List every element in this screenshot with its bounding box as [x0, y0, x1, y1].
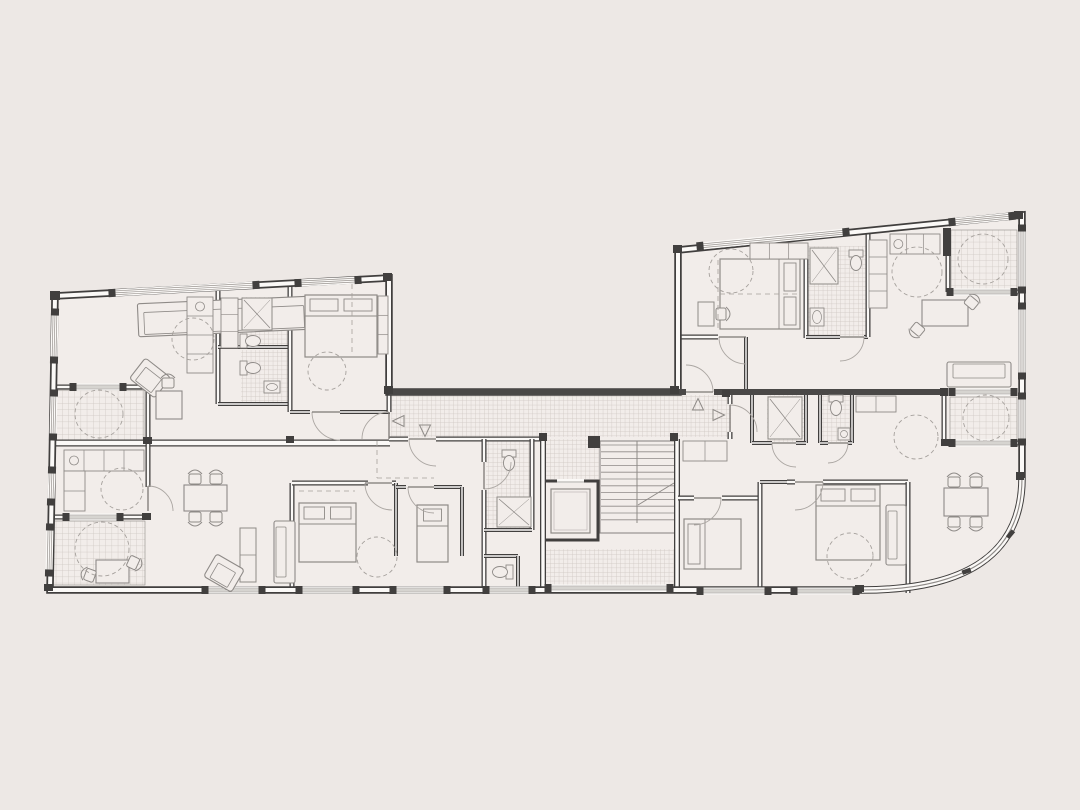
- kitchen-counter-a: [187, 297, 213, 373]
- shower-c: [810, 248, 838, 284]
- closet-a: [221, 298, 238, 348]
- bed-d2-double: [816, 485, 880, 560]
- floor-plan-page: [0, 0, 1080, 810]
- kitchen-counter-c: [890, 234, 940, 254]
- toilet-a1: [240, 334, 261, 348]
- sink-c: [810, 308, 824, 326]
- floor-plan-drawing: [0, 0, 1080, 810]
- bed-b-single: [417, 505, 448, 562]
- wardrobe-a: [378, 296, 388, 354]
- sofa-b: [274, 521, 295, 583]
- terrace-table-b: [96, 560, 129, 583]
- sink-d2: [838, 428, 850, 440]
- terrace-a: [56, 390, 144, 440]
- dining-table-d: [944, 488, 988, 516]
- terrace-c: [951, 230, 1017, 290]
- toilet-b-wc: [493, 565, 514, 579]
- toilet-c: [849, 250, 863, 271]
- bed-b-double: [299, 503, 356, 562]
- dining-table-b: [184, 485, 227, 511]
- closet-c: [869, 240, 887, 308]
- desk-a: [156, 391, 182, 419]
- bed-d1-double: [684, 519, 741, 569]
- kitchen-counter-b2: [64, 471, 85, 511]
- toilet-a2: [240, 361, 261, 375]
- shower-d1: [768, 397, 802, 439]
- toilet-d2: [829, 395, 843, 416]
- bed-a-double: [305, 295, 377, 357]
- shower-a1: [242, 298, 272, 330]
- closet-c-top: [750, 243, 808, 259]
- table-c: [922, 300, 968, 326]
- sofa-d: [886, 505, 906, 565]
- closet-d-hall: [683, 441, 727, 461]
- shower-b: [497, 497, 531, 527]
- toilet-b-bath: [502, 450, 516, 471]
- terrace-d: [950, 397, 1017, 442]
- kitchen-counter-d: [856, 396, 896, 412]
- desk-c: [698, 302, 714, 326]
- sink-a2: [264, 381, 280, 393]
- sofa-c: [947, 362, 1011, 387]
- kitchen-counter-b1: [64, 450, 144, 471]
